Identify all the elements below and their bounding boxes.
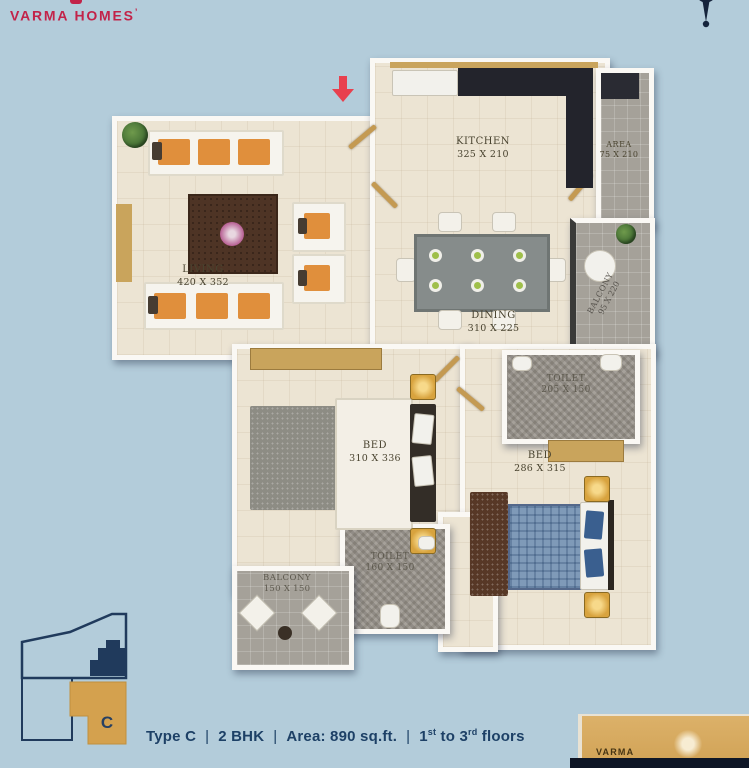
nightstand-lamp [410,374,436,400]
watermark-box: VARMA [578,714,749,760]
bottom-navy-bar [570,758,749,768]
bed-2-label: BED286 X 315 [486,450,594,474]
dining-chair [396,258,416,282]
trademark-mark: ’ [135,7,139,17]
sofa-bottom [144,282,284,330]
balcony-right-label: BALCONY95 X 220 [568,250,642,342]
nightstand-lamp [584,592,610,618]
dining-table [414,234,550,312]
bed-2-frame [608,500,614,590]
balcony-table-small [278,626,292,640]
kitchen-counter-right [566,68,593,188]
plant-icon [616,224,636,244]
coffee-table [188,194,278,274]
floor-plan: LIVING420 X 352 KITCHEN325 X 210 AREA75 … [108,52,646,672]
toilet-2-sink [418,536,435,550]
work-area-label: AREA75 X 210 [594,140,644,160]
watermark-text: VARMA [596,747,634,757]
sofa-top [148,130,284,176]
rug-2 [470,492,508,596]
dining-chair [438,212,462,232]
dining-chair [492,212,516,232]
bed-2-mattress [508,504,584,590]
toilet-1-label: TOILET205 X 150 [510,374,622,397]
work-area-counter [601,73,639,99]
caption-bhk: 2 BHK [218,728,264,745]
entry-arrow-head-icon [332,89,354,102]
caption-type: Type C [146,728,196,745]
rug-1 [250,406,342,510]
toilet-2-wc [380,604,400,628]
toilet-1-sink [512,356,532,371]
dining-label: DINING310 X 225 [441,310,546,334]
key-plan: C [12,598,164,746]
kitchen-sink [392,70,458,96]
logo-emblem-fragment [70,0,82,4]
entry-arrow-icon [339,76,347,89]
armchair-1 [292,202,346,252]
caption-floors: 1st to 3rd floors [419,728,524,745]
compass-icon [678,0,734,30]
toilet-2-label: TOILET160 X 150 [342,552,438,575]
armchair-2 [292,254,346,304]
brand-logo: VARMA HOMES’ [10,7,139,24]
watermark-emblem-icon [674,730,702,758]
bed-2-headboard [580,502,610,590]
nightstand-lamp [584,476,610,502]
key-plan-unit-letter: C [101,713,113,732]
kitchen-label: KITCHEN325 X 210 [420,136,546,160]
plan-caption: Type C|2 BHK|Area: 890 sq.ft.|1st to 3rd… [146,727,525,745]
caption-area: Area: 890 sq.ft. [286,728,397,745]
plant-icon [122,122,148,148]
toilet-1-wc [600,354,622,371]
bed-1-label: BED310 X 336 [330,440,420,464]
console-table [116,204,132,282]
balcony-bottom-label: BALCONY150 X 150 [234,573,340,594]
living-label: LIVING420 X 352 [138,264,268,288]
wardrobe-1 [250,348,382,370]
